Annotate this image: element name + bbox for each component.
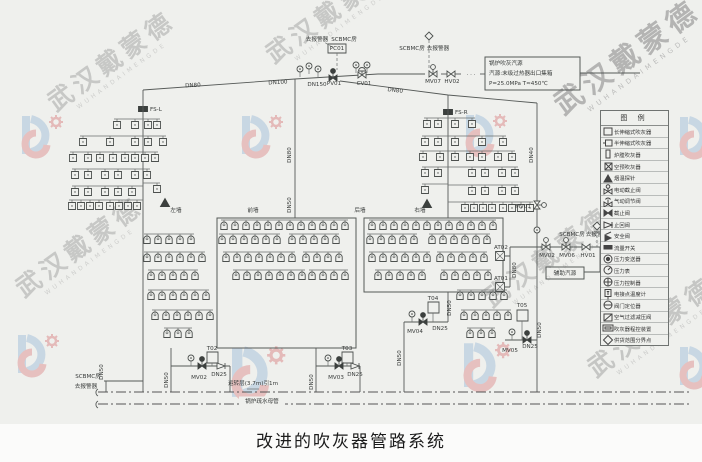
mv07-label: MV07 [425,79,441,85]
legend-row-3: 空预吹灰器 [601,161,668,173]
piping-diagram: DN80DN100DN150DN80FS-LFS-RPV01CV01PC01去报… [0,0,702,462]
at02-label: AT02 [494,245,508,251]
dn50-t05-label: DN50 [537,322,543,338]
rect-v-icon [601,149,614,159]
mv01-label: MV01 [515,204,531,210]
wall-front-label: 前墙 [247,206,259,214]
sq-m-icon [601,138,614,148]
legend-row-10: 流量开关 [601,242,668,254]
scbmc-top-label: SCBMC房 [331,35,357,43]
alarm-top-label: 去报警器 [306,35,329,43]
dn25-t03-label: DN25 [347,372,363,378]
wall-blower-banks [144,220,511,338]
legend-row-6: 气动调节阀 [601,196,668,208]
t02-label: T02 [206,346,218,352]
dn25-t04-label: DN25 [432,326,448,332]
mv04-label: MV04 [407,329,423,335]
level-note-label: 运转层(3.7m)引1m [228,379,278,387]
hv01-right-label: HV01 [580,253,596,259]
wall-right-label: 右墙 [414,206,426,214]
legend-item-label: 半伸缩式吹灰器 [614,139,651,147]
cv-icon [601,219,614,229]
legend-item-label: 空预吹灰器 [614,162,641,170]
mv07-valve [429,65,437,77]
legend-item-label: 压力变送器 [614,255,641,263]
legend-row-17: 吹灰器程控装置 [601,323,668,335]
wall-rear-label: 后墙 [354,206,366,214]
src-line2: 汽源:末级过热器出口集箱 [489,69,553,77]
at01-label: AT01 [494,276,508,282]
legend-item-label: 电接点温度计 [614,289,646,297]
fs-r-label: FS-R [455,110,468,116]
alarm-mid-label: 去报警器 [427,44,450,52]
dn50-t04-label: DN50 [447,300,453,316]
scbmc-right-label: SCBMC房 [559,230,585,238]
tri-icon [601,173,614,183]
legend-row-1: 半伸缩式吹灰器 [601,138,668,150]
sq-l-icon [601,126,614,136]
src-line1: 锅炉吹灰汽源 [489,59,523,67]
at02-box [496,252,505,261]
legend-row-2: 炉膛吹灰器 [601,149,668,161]
drain-header-pipe [96,381,690,408]
hv02-label: HV02 [444,79,459,85]
legend-item-label: 截止阀 [614,208,630,216]
aux-source-box-label: 辅助汽源 [554,269,577,277]
legend-row-15: 阀门定位器 [601,300,668,312]
legend-row-9: 安全阀 [601,230,668,242]
hv02-valve [447,71,455,77]
alarm-bottomleft-label: 去报警器 [75,382,98,390]
dn25-t05-label: DN25 [522,344,538,350]
legend-item-label: 压力表 [614,266,630,274]
line-break-dots: · · · [467,72,476,78]
legend-item-label: 压力控制器 [614,278,641,286]
pnv-icon [601,196,614,206]
legend-row-14: 电接点温度计 [601,288,668,300]
scbmc-bottomleft-label: SCBMC房 [75,372,101,380]
drain-assembly-t02 [171,348,230,392]
legend-row-18: 供货范围分界点 [601,335,668,346]
fsw-icon [601,242,614,252]
fs-l-label: FS-L [150,107,163,113]
dn100-label: DN100 [268,79,288,86]
legend-row-7: 截止阀 [601,207,668,219]
dn80-right-label: DN80 [512,262,518,278]
legend-item-label: 阀门定位器 [614,301,641,309]
legend-box: 图 例 长伸缩式吹灰器半伸缩式吹灰器炉膛吹灰器空预吹灰器烟温探针电动截止阀气动调… [600,110,669,346]
tt-icon [601,289,614,299]
legend-row-0: 长伸缩式吹灰器 [601,126,668,138]
t03-label: T03 [341,346,353,352]
legend-row-13: 压力控制器 [601,277,668,289]
scbmc-mid-label: SCBMC房 [399,44,425,52]
vp-icon [601,300,614,310]
mv02-right-label: MV02 [539,253,555,259]
pt-icon [601,254,614,264]
legend-row-11: 压力变送器 [601,254,668,266]
pc01-label: PC01 [330,46,345,52]
feeder-pipes [295,79,537,392]
mv05-label: MV05 [502,348,518,354]
legend-header: 图 例 [601,111,668,126]
legend-row-8: 止回阀 [601,219,668,231]
furnace-walls [217,218,503,348]
dn50-t04b-label: DN50 [397,350,403,366]
legend-item-label: 电动截止阀 [614,185,641,193]
drawing-canvas: { "title": "改进的吹灰器管路系统", "watermark": { … [0,0,702,462]
mv02-drain-label: MV02 [191,375,207,381]
legend-item-label: 吹灰器程控装置 [614,324,651,332]
dn80-slope-label: DN80 [387,87,404,95]
dn40-label: DN40 [529,147,535,163]
pv01-label: PV01 [327,81,342,87]
legend-item-label: 供货范围分界点 [614,336,651,344]
mov-icon [601,184,614,194]
dn25-t02-label: DN25 [211,372,227,378]
legend-row-4: 烟温探针 [601,172,668,184]
cv01-label: CV01 [357,81,372,87]
pg-icon [601,265,614,275]
t04-label: T04 [427,296,439,302]
mv03-drain-label: MV03 [328,375,344,381]
flue-temp-probe [161,199,170,207]
dn50-t02-label: DN50 [164,372,170,388]
mv06-valve [562,238,570,250]
drain-assembly-t03 [316,348,360,392]
legend-item-label: 炉膛吹灰器 [614,150,641,158]
t05-label: T05 [516,303,528,309]
prv-icon [601,312,614,322]
dn150-label: DN150 [307,82,327,88]
legend-item-label: 烟温探针 [614,174,635,182]
signal-diamond-top [425,32,433,40]
legend-item-label: 气动调节阀 [614,197,641,205]
legend-item-label: 空气过滤减压阀 [614,313,651,321]
legend-item-label: 止回阀 [614,220,630,228]
hv01-valve [582,244,590,250]
pc-icon [601,277,614,287]
gv-icon [601,207,614,217]
mv06-right-label: MV06 [559,253,575,259]
sv-icon [601,231,614,241]
dn50-center-label: DN50 [287,197,293,213]
src-line3: P=25.0MPa T≈450℃ [489,80,548,87]
drain-assembly-t04 [404,292,448,392]
legend-row-5: 电动截止阀 [601,184,668,196]
drawing-title: 改进的吹灰器管路系统 [0,427,702,452]
drain-header-label: 锅炉疏水母管 [245,397,279,405]
dn50-t03-label: DN50 [309,374,315,390]
legend-row-16: 空气过滤减压阀 [601,312,668,324]
flue-temp-probe [423,200,432,208]
sootblower-tree-right [420,95,534,218]
legend-item-label: 流量开关 [614,243,635,251]
dia-icon [601,335,614,345]
dn80-center-label: DN80 [287,147,293,163]
legend-item-label: 长伸缩式吹灰器 [614,127,651,135]
sq-x-icon [601,161,614,171]
legend-item-label: 安全阀 [614,232,630,240]
mv01-valve [534,201,546,209]
legend-row-12: 压力表 [601,265,668,277]
mv02-valve [542,238,550,250]
ctrl-icon [601,323,614,333]
dn80-left-label: DN80 [185,83,201,90]
wall-left-label: 左墙 [170,206,182,214]
